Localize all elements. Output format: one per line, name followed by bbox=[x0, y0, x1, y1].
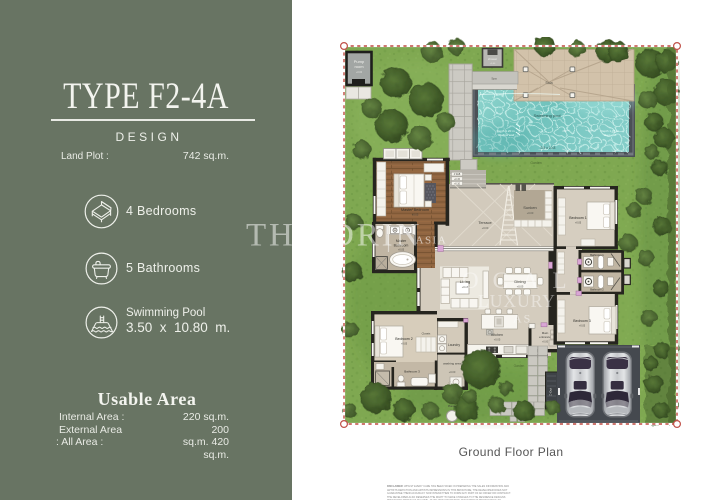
svg-text:Spa: Spa bbox=[491, 77, 497, 81]
svg-text:+0.00: +0.00 bbox=[449, 370, 456, 374]
svg-text:room: room bbox=[354, 64, 364, 69]
svg-text:+0.00: +0.00 bbox=[542, 341, 549, 344]
svg-text:Bedroom 2: Bedroom 2 bbox=[395, 337, 413, 341]
svg-text:deep end: deep end bbox=[604, 133, 617, 137]
svg-text:+0.05: +0.05 bbox=[494, 338, 501, 342]
svg-text:Bathroom 3: Bathroom 3 bbox=[404, 370, 420, 374]
svg-text:Sunken: Sunken bbox=[523, 205, 537, 210]
svg-text:Bedroom 1: Bedroom 1 bbox=[569, 216, 587, 220]
svg-text:shower: shower bbox=[488, 57, 497, 61]
svg-text:Bathroom 2: Bathroom 2 bbox=[590, 288, 604, 292]
svg-text:AS: AS bbox=[513, 312, 532, 326]
svg-text:entrance: entrance bbox=[539, 335, 551, 339]
svg-text:LUXURY: LUXURY bbox=[478, 291, 556, 311]
svg-text:Kitchen: Kitchen bbox=[491, 333, 503, 337]
svg-text:+0.00: +0.00 bbox=[490, 63, 496, 65]
svg-text:4 S&B: 4 S&B bbox=[454, 174, 461, 176]
svg-text:C-Out: C-Out bbox=[549, 388, 553, 396]
svg-text:Bedroom 3: Bedroom 3 bbox=[573, 319, 591, 323]
svg-text:Master Bedroom: Master Bedroom bbox=[401, 208, 429, 212]
svg-text:3.5 x 10.8: 3.5 x 10.8 bbox=[541, 146, 556, 150]
svg-text:+0.00: +0.00 bbox=[356, 71, 363, 74]
svg-text:THE DRIN: THE DRIN bbox=[246, 218, 422, 254]
svg-text:ASIA: ASIA bbox=[416, 235, 448, 247]
svg-text:Swimming pool: Swimming pool bbox=[533, 113, 560, 118]
svg-text:+0.15: +0.15 bbox=[454, 179, 461, 181]
svg-text:washing area: washing area bbox=[443, 362, 461, 366]
svg-text:Garden: Garden bbox=[530, 161, 541, 165]
svg-text:Closets: Closets bbox=[422, 332, 431, 336]
svg-text:Sala: Sala bbox=[545, 81, 552, 85]
svg-text:Terrace: Terrace bbox=[478, 220, 492, 225]
svg-text:+0.05: +0.05 bbox=[412, 213, 419, 217]
svg-text:Bathroom 1: Bathroom 1 bbox=[590, 253, 604, 257]
svg-text:+0.00: +0.00 bbox=[482, 226, 489, 230]
svg-text:Garden: Garden bbox=[514, 364, 525, 368]
svg-text:+0.05: +0.05 bbox=[575, 222, 582, 225]
svg-text:shallow end: shallow end bbox=[498, 133, 514, 137]
svg-text:+0.05: +0.05 bbox=[579, 325, 586, 328]
svg-text:+0.00: +0.00 bbox=[527, 211, 534, 215]
svg-text:Laundry: Laundry bbox=[448, 343, 461, 347]
svg-text:OCAL: OCAL bbox=[462, 268, 581, 293]
svg-text:+0.05: +0.05 bbox=[401, 343, 408, 346]
